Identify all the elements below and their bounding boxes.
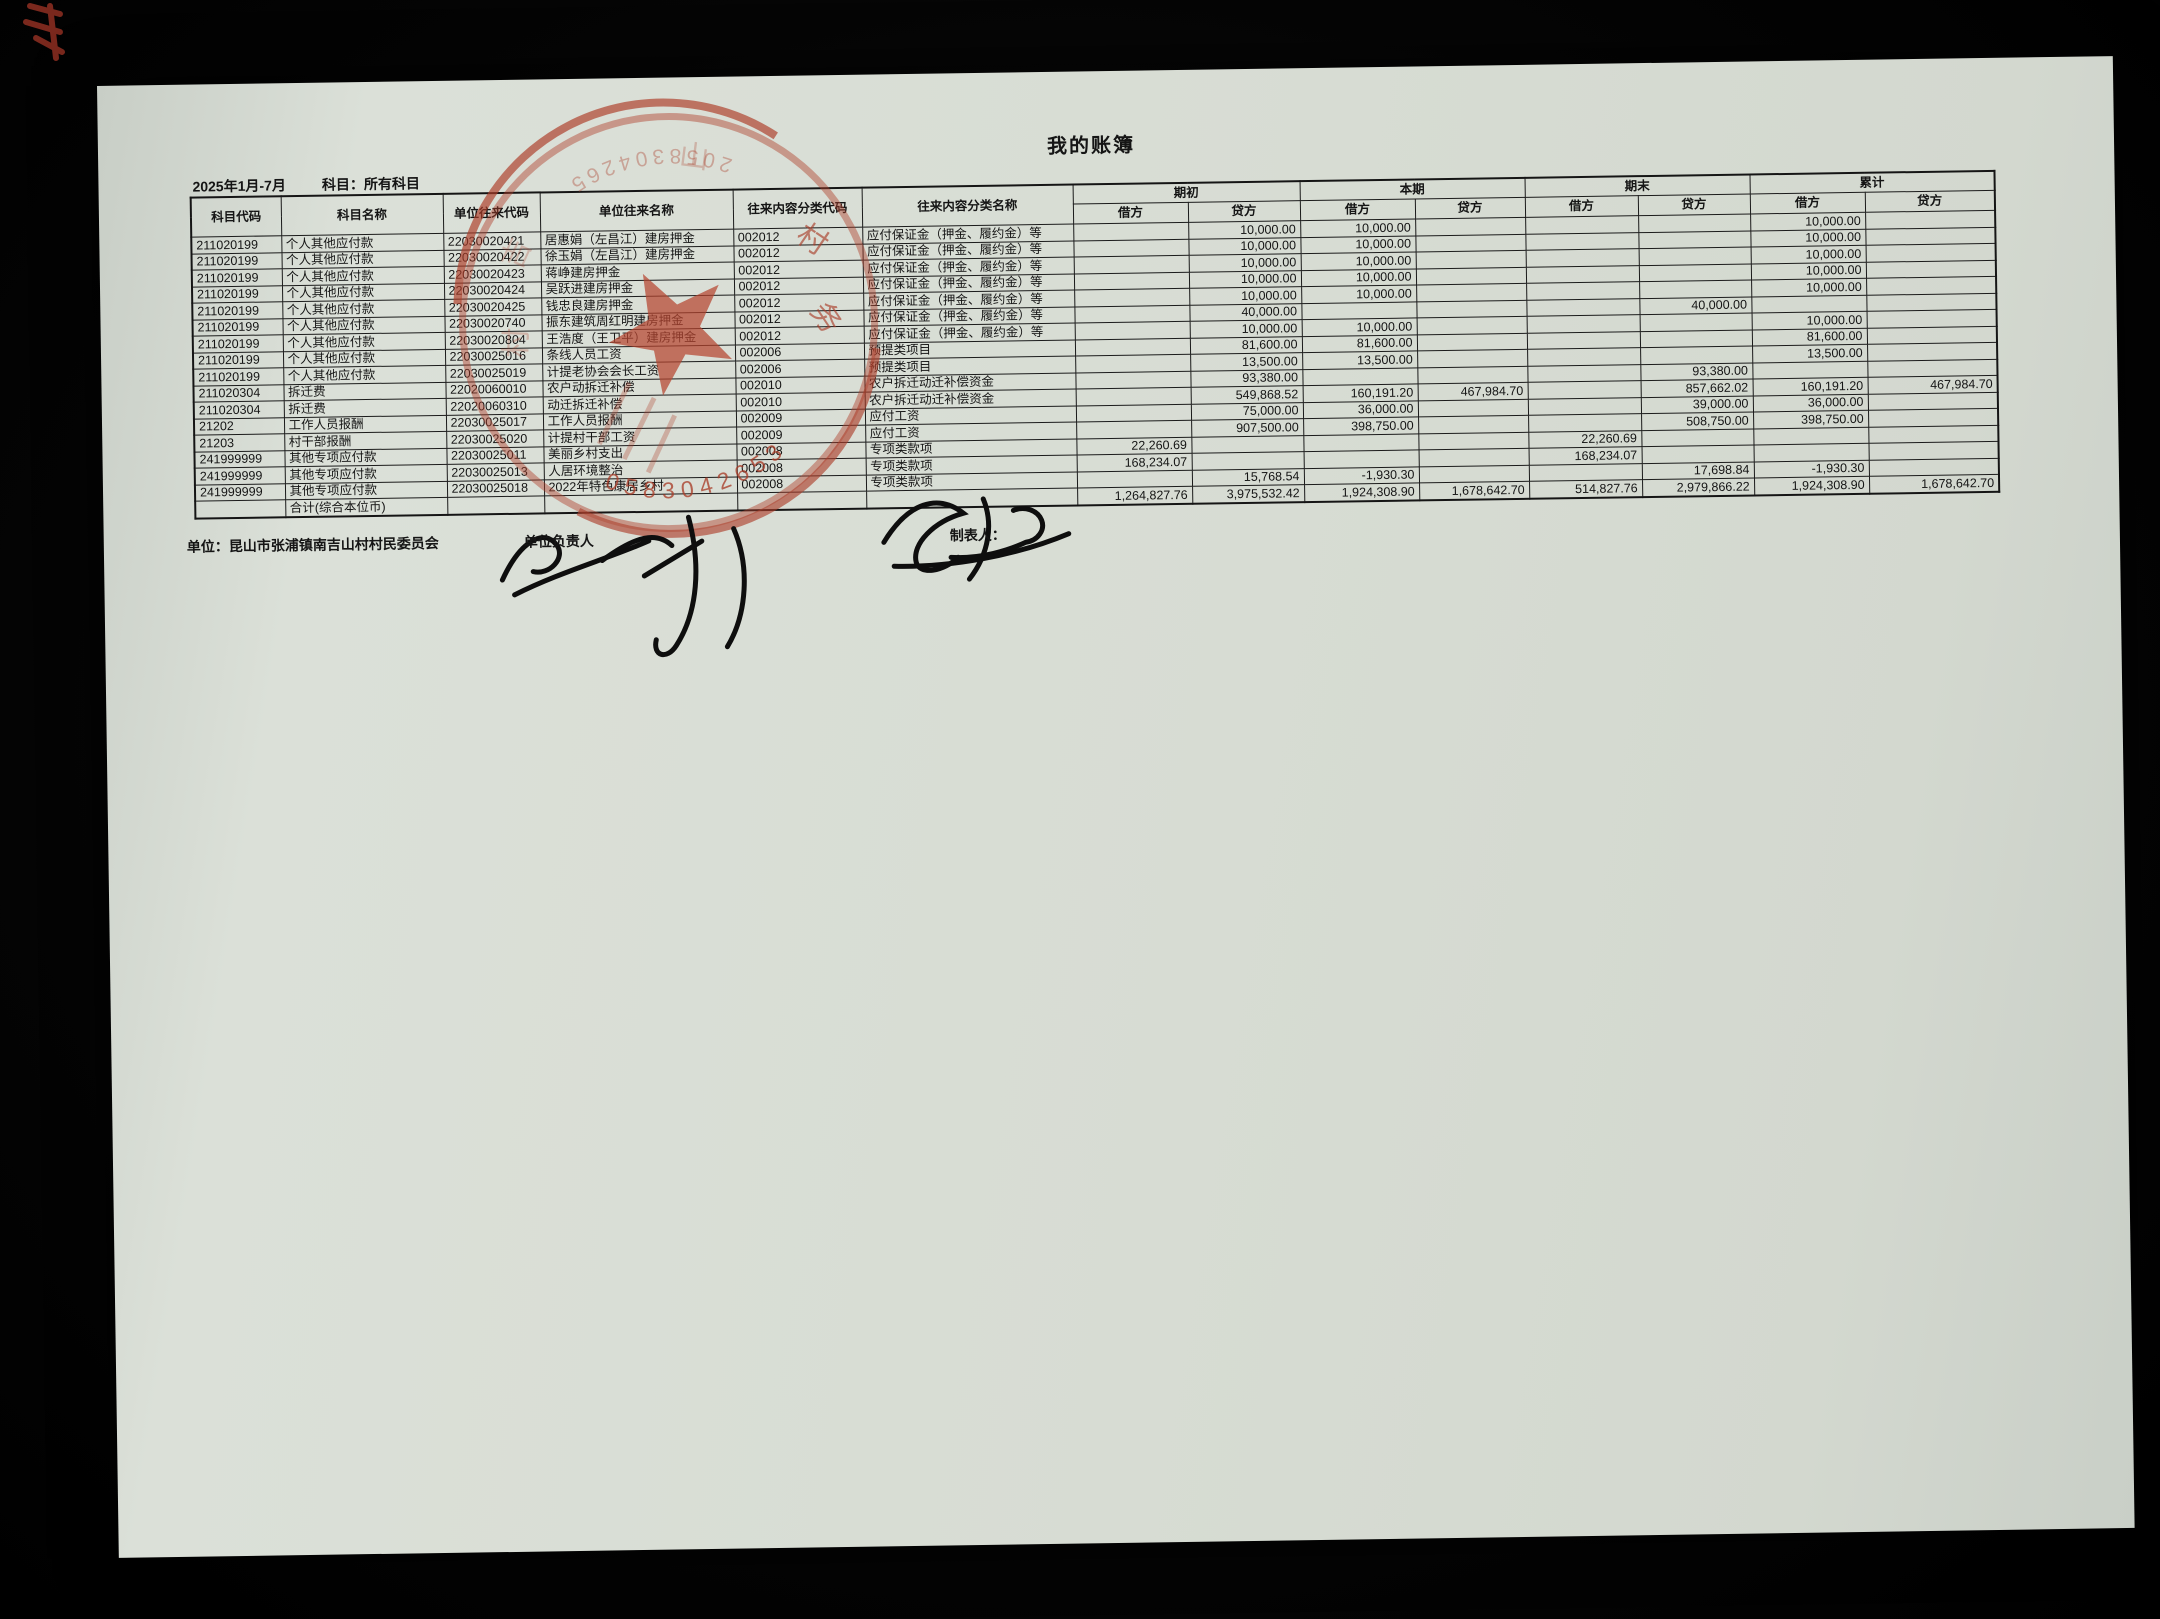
text-cell: 211020199 bbox=[192, 285, 282, 303]
amount-cell bbox=[1415, 234, 1525, 252]
amount-cell bbox=[1640, 313, 1752, 331]
amount-cell bbox=[1074, 305, 1189, 323]
unit-name: 单位：昆山市张浦镇南吉山村村民委员会 bbox=[187, 533, 439, 557]
amount-cell bbox=[1075, 354, 1190, 372]
amount-cell bbox=[1303, 433, 1418, 451]
amount-cell bbox=[1419, 448, 1529, 466]
text-cell: 211020199 bbox=[191, 252, 281, 270]
amount-cell: 10,000.00 bbox=[1301, 268, 1416, 286]
amount-cell bbox=[1527, 331, 1640, 349]
manager-signature bbox=[483, 496, 786, 680]
amount-cell bbox=[1526, 265, 1639, 283]
amount-cell bbox=[1418, 415, 1528, 433]
amount-cell bbox=[1639, 247, 1751, 265]
amount-cell: 160,191.20 bbox=[1753, 377, 1868, 395]
amount-cell bbox=[1074, 272, 1189, 290]
amount-cell: 168,234.07 bbox=[1077, 453, 1192, 471]
amount-cell: 10,000.00 bbox=[1190, 320, 1302, 338]
amount-cell bbox=[1639, 280, 1751, 298]
amount-cell: 10,000.00 bbox=[1752, 311, 1867, 329]
amount-cell bbox=[1528, 414, 1641, 432]
amount-cell: 10,000.00 bbox=[1189, 270, 1301, 288]
amount-cell: 22,260.69 bbox=[1528, 430, 1641, 448]
amount-cell: 10,000.00 bbox=[1750, 212, 1865, 230]
amount-cell bbox=[1417, 316, 1527, 334]
amount-cell bbox=[1073, 222, 1188, 240]
amount-cell bbox=[1301, 301, 1416, 319]
amount-cell bbox=[1865, 227, 1995, 245]
text-cell: 211020304 bbox=[194, 401, 284, 419]
amount-cell bbox=[1638, 230, 1750, 248]
amount-cell: 2,979,866.22 bbox=[1642, 478, 1754, 497]
amount-cell: 1,678,642.70 bbox=[1419, 481, 1529, 500]
amount-cell: 93,380.00 bbox=[1190, 369, 1302, 387]
amount-cell bbox=[1416, 283, 1526, 301]
sub-header: 借方 bbox=[1525, 196, 1638, 218]
amount-cell: 17,698.84 bbox=[1642, 461, 1754, 479]
amount-cell: 75,000.00 bbox=[1191, 402, 1303, 420]
text-cell: 211020199 bbox=[193, 335, 283, 353]
amount-cell: 36,000.00 bbox=[1753, 394, 1868, 412]
amount-cell bbox=[1866, 276, 1996, 294]
amount-cell bbox=[1191, 435, 1303, 453]
amount-cell bbox=[1076, 420, 1191, 438]
amount-cell: 467,984.70 bbox=[1418, 382, 1528, 400]
amount-cell: 1,678,642.70 bbox=[1869, 474, 1999, 493]
amount-cell: 1,924,308.90 bbox=[1754, 476, 1869, 495]
amount-cell: 10,000.00 bbox=[1751, 262, 1866, 280]
amount-cell bbox=[1867, 309, 1997, 327]
text-cell: 21203 bbox=[194, 434, 284, 452]
amount-cell bbox=[1528, 381, 1641, 399]
text-cell: 241999999 bbox=[195, 483, 285, 501]
amount-cell: 15,768.54 bbox=[1192, 468, 1304, 486]
amount-cell: 907,500.00 bbox=[1191, 419, 1303, 437]
text-cell: 211020199 bbox=[193, 351, 283, 369]
svg-text:务: 务 bbox=[803, 296, 847, 339]
amount-cell: 10,000.00 bbox=[1301, 252, 1416, 270]
column-header: 科目代码 bbox=[191, 196, 282, 237]
amount-cell bbox=[1869, 441, 1999, 459]
amount-cell: 10,000.00 bbox=[1189, 254, 1301, 272]
amount-cell bbox=[1418, 432, 1528, 450]
amount-cell bbox=[1074, 288, 1189, 306]
text-cell: 211020199 bbox=[193, 368, 283, 386]
amount-cell bbox=[1867, 359, 1997, 377]
sub-header: 贷方 bbox=[1865, 190, 1995, 212]
sub-header: 贷方 bbox=[1638, 194, 1750, 216]
amount-cell bbox=[1417, 366, 1527, 384]
amount-cell bbox=[1073, 239, 1188, 257]
amount-cell: 13,500.00 bbox=[1190, 353, 1302, 371]
amount-cell: 467,984.70 bbox=[1868, 375, 1998, 393]
amount-cell bbox=[1753, 427, 1868, 445]
amount-cell: 10,000.00 bbox=[1751, 245, 1866, 263]
amount-cell bbox=[1640, 346, 1752, 364]
amount-cell: -1,930.30 bbox=[1754, 460, 1869, 478]
report-period: 2025年1月-7月 bbox=[192, 177, 286, 194]
amount-cell: 160,191.20 bbox=[1303, 384, 1418, 402]
amount-cell: 1,924,308.90 bbox=[1304, 483, 1419, 502]
amount-cell: 549,868.52 bbox=[1191, 386, 1303, 404]
amount-cell bbox=[1640, 329, 1752, 347]
text-cell: 211020304 bbox=[193, 384, 283, 402]
amount-cell bbox=[1867, 326, 1997, 344]
amount-cell bbox=[1416, 267, 1526, 285]
amount-cell: 36,000.00 bbox=[1303, 400, 1418, 418]
amount-cell bbox=[1752, 361, 1867, 379]
amount-cell bbox=[1525, 216, 1638, 234]
amount-cell bbox=[1528, 397, 1641, 415]
amount-cell bbox=[1075, 371, 1190, 389]
sub-header: 借方 bbox=[1073, 202, 1188, 224]
amount-cell: 508,750.00 bbox=[1641, 412, 1753, 430]
amount-cell bbox=[1075, 321, 1190, 339]
amount-cell: 398,750.00 bbox=[1753, 410, 1868, 428]
amount-cell bbox=[1416, 250, 1526, 268]
amount-cell: 93,380.00 bbox=[1640, 362, 1752, 380]
text-cell: 211020199 bbox=[192, 302, 282, 320]
text-cell: 211020199 bbox=[191, 236, 281, 254]
text-cell: 241999999 bbox=[195, 467, 285, 485]
amount-cell: 3,975,532.42 bbox=[1192, 485, 1304, 504]
amount-cell: 10,000.00 bbox=[1300, 235, 1415, 253]
amount-cell: 857,662.02 bbox=[1641, 379, 1753, 397]
text-cell: 合计(综合本位币) bbox=[285, 497, 447, 516]
amount-cell bbox=[1526, 282, 1639, 300]
amount-cell bbox=[1527, 315, 1640, 333]
sub-header: 贷方 bbox=[1415, 197, 1525, 219]
amount-cell bbox=[1304, 450, 1419, 468]
amount-cell bbox=[1868, 408, 1998, 426]
official-seal-stamp: 0583042653 2058304265 村 务 村 吉 山 bbox=[427, 74, 914, 571]
amount-cell: 10,000.00 bbox=[1751, 278, 1866, 296]
photo-background: 我的账簿 2025年1月-7月科目：所有科目 科目代码科目名称单位往来代码单位往… bbox=[0, 0, 2160, 1619]
amount-cell bbox=[1638, 214, 1750, 232]
amount-cell: 39,000.00 bbox=[1641, 395, 1753, 413]
amount-cell: 13,500.00 bbox=[1302, 351, 1417, 369]
star-icon bbox=[588, 245, 752, 406]
svg-text:村: 村 bbox=[790, 218, 833, 262]
amount-cell: 168,234.07 bbox=[1529, 447, 1642, 465]
amount-cell bbox=[1866, 293, 1996, 311]
amount-cell bbox=[1302, 367, 1417, 385]
amount-cell bbox=[1754, 443, 1869, 461]
manager-label: 单位负责人 bbox=[524, 531, 594, 552]
amount-cell: 40,000.00 bbox=[1639, 296, 1751, 314]
amount-cell bbox=[1865, 210, 1995, 228]
amount-cell bbox=[1418, 399, 1528, 417]
amount-cell: 81,600.00 bbox=[1302, 334, 1417, 352]
amount-cell: 514,827.76 bbox=[1529, 480, 1642, 499]
amount-cell: 22,260.69 bbox=[1076, 437, 1191, 455]
amount-cell bbox=[1639, 263, 1751, 281]
amount-cell: 10,000.00 bbox=[1750, 229, 1865, 247]
amount-cell bbox=[1415, 217, 1525, 235]
amount-cell bbox=[1525, 232, 1638, 250]
amount-cell bbox=[1416, 300, 1526, 318]
red-corner-mark bbox=[16, 0, 86, 75]
amount-cell bbox=[1868, 425, 1998, 443]
amount-cell bbox=[1417, 333, 1527, 351]
amount-cell bbox=[1868, 392, 1998, 410]
amount-cell bbox=[1866, 243, 1996, 261]
amount-cell: 40,000.00 bbox=[1189, 303, 1301, 321]
amount-cell bbox=[1419, 465, 1529, 483]
amount-cell bbox=[1866, 260, 1996, 278]
column-header: 科目名称 bbox=[281, 194, 444, 236]
amount-cell: 10,000.00 bbox=[1189, 287, 1301, 305]
amount-cell bbox=[1526, 298, 1639, 316]
svg-text:村: 村 bbox=[500, 327, 534, 358]
svg-text:吉: 吉 bbox=[496, 233, 538, 274]
amount-cell bbox=[1076, 404, 1191, 422]
amount-cell bbox=[1869, 458, 1999, 476]
amount-cell: 13,500.00 bbox=[1752, 344, 1867, 362]
amount-cell bbox=[1751, 295, 1866, 313]
amount-cell bbox=[1527, 364, 1640, 382]
amount-cell bbox=[1527, 348, 1640, 366]
sub-header: 借方 bbox=[1750, 192, 1865, 214]
sub-header: 贷方 bbox=[1188, 201, 1300, 223]
amount-cell bbox=[1417, 349, 1527, 367]
amount-cell bbox=[1075, 338, 1190, 356]
subject-filter: 科目：所有科目 bbox=[322, 175, 420, 192]
amount-cell bbox=[1529, 463, 1642, 481]
amount-cell bbox=[1642, 445, 1754, 463]
amount-cell bbox=[1526, 249, 1639, 267]
amount-cell: 10,000.00 bbox=[1301, 285, 1416, 303]
amount-cell: 10,000.00 bbox=[1188, 237, 1300, 255]
amount-cell: 81,600.00 bbox=[1190, 336, 1302, 354]
text-cell: 211020199 bbox=[192, 269, 282, 287]
amount-cell bbox=[1867, 342, 1997, 360]
amount-cell bbox=[1074, 255, 1189, 273]
sub-header: 借方 bbox=[1300, 199, 1415, 221]
amount-cell: 398,750.00 bbox=[1303, 417, 1418, 435]
amount-cell bbox=[1641, 428, 1753, 446]
amount-cell: 10,000.00 bbox=[1300, 219, 1415, 237]
amount-cell bbox=[1076, 387, 1191, 405]
paper-sheet: 我的账簿 2025年1月-7月科目：所有科目 科目代码科目名称单位往来代码单位往… bbox=[97, 56, 2135, 1558]
amount-cell bbox=[1192, 452, 1304, 470]
svg-text:山: 山 bbox=[677, 139, 711, 175]
text-cell bbox=[195, 500, 285, 518]
amount-cell: 81,600.00 bbox=[1752, 328, 1867, 346]
text-cell: 21202 bbox=[194, 417, 284, 435]
preparer-label: 制表人： bbox=[950, 525, 1006, 546]
text-cell: 211020199 bbox=[192, 318, 282, 336]
amount-cell: 10,000.00 bbox=[1302, 318, 1417, 336]
text-cell: 241999999 bbox=[194, 450, 284, 468]
amount-cell: -1,930.30 bbox=[1304, 466, 1419, 484]
amount-cell: 10,000.00 bbox=[1188, 221, 1300, 239]
